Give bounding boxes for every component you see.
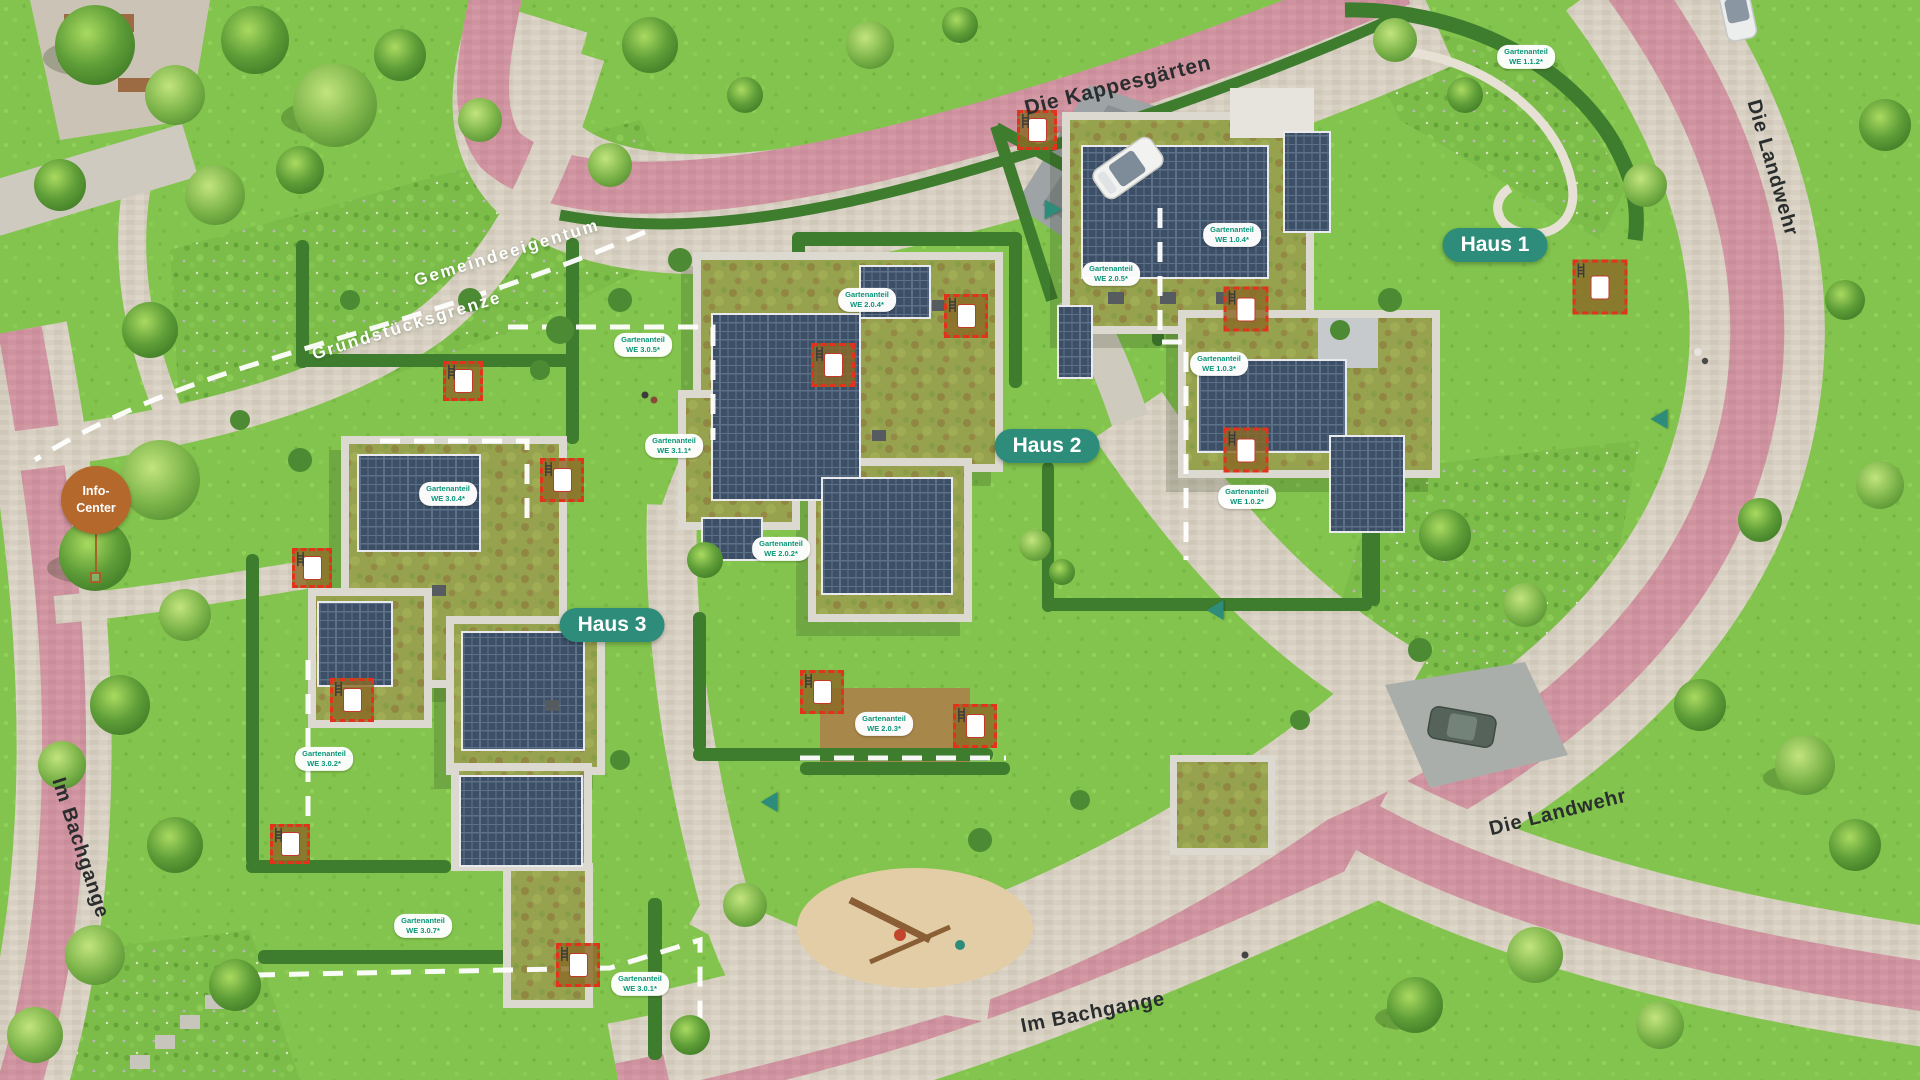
- ladder-icon: [966, 714, 985, 738]
- terrace-marker: [540, 458, 584, 502]
- entrance-arrow-icon: [1651, 409, 1668, 429]
- label-overlay: GemeindeeigentumGrundstücksgrenze Die Ka…: [0, 0, 1920, 1080]
- boundary-label: Gemeindeeigentum: [412, 215, 602, 291]
- garden-share-label: GartenanteilWE 3.1.1*: [645, 434, 703, 458]
- ladder-icon: [569, 953, 588, 977]
- entrance-arrow-icon: [1036, 195, 1062, 220]
- terrace-marker: [292, 548, 332, 588]
- garden-share-label: GartenanteilWE 2.0.3*: [855, 712, 913, 736]
- ladder-icon: [281, 832, 300, 856]
- garden-share-label: GartenanteilWE 3.0.7*: [394, 914, 452, 938]
- ladder-icon: [813, 680, 832, 704]
- ladder-icon: [303, 556, 322, 580]
- site-plan: GemeindeeigentumGrundstücksgrenze Die Ka…: [0, 0, 1920, 1080]
- terrace-marker: [330, 678, 374, 722]
- terrace-marker: [1224, 428, 1269, 473]
- garden-share-label: GartenanteilWE 2.0.5*: [1082, 262, 1140, 286]
- entrance-arrow-icon: [761, 792, 778, 812]
- info-center-label-line2: Center: [76, 500, 116, 517]
- garden-share-label: GartenanteilWE 1.0.4*: [1203, 223, 1261, 247]
- terrace-marker: [270, 824, 310, 864]
- terrace-marker: [944, 294, 988, 338]
- terrace-marker: [443, 361, 483, 401]
- garden-share-label: GartenanteilWE 1.0.2*: [1218, 485, 1276, 509]
- info-center-foot: [90, 572, 101, 583]
- street-name-label: Im Bachgange: [46, 775, 113, 921]
- garden-share-label: GartenanteilWE 3.0.5*: [614, 333, 672, 357]
- ladder-icon: [343, 688, 362, 712]
- ladder-icon: [1237, 438, 1256, 462]
- info-center-stem: [95, 534, 97, 572]
- terrace-marker: [1573, 260, 1628, 315]
- ladder-icon: [824, 353, 843, 377]
- street-name-label: Die Kappesgärten: [1022, 51, 1213, 121]
- terrace-marker: [811, 343, 855, 387]
- garden-share-label: GartenanteilWE 3.0.2*: [295, 747, 353, 771]
- ladder-icon: [454, 369, 473, 393]
- house-label-pill[interactable]: Haus 1: [1443, 228, 1548, 262]
- garden-share-label: GartenanteilWE 3.0.1*: [611, 972, 669, 996]
- street-name-label: Im Bachgange: [1019, 988, 1167, 1038]
- garden-share-label: GartenanteilWE 3.0.4*: [419, 482, 477, 506]
- ladder-icon: [957, 304, 976, 328]
- terrace-marker: [953, 704, 997, 748]
- garden-share-label: GartenanteilWE 1.0.3*: [1190, 352, 1248, 376]
- terrace-marker: [1224, 287, 1269, 332]
- boundary-label: Grundstücksgrenze: [310, 288, 504, 365]
- street-name-label: Die Landwehr: [1487, 785, 1629, 841]
- terrace-marker: [556, 943, 600, 987]
- info-center-label-line1: Info-: [82, 483, 109, 500]
- garden-share-label: GartenanteilWE 2.0.4*: [838, 288, 896, 312]
- entrance-arrow-icon: [1207, 600, 1224, 620]
- garden-share-label: GartenanteilWE 2.0.2*: [752, 537, 810, 561]
- street-name-label: Die Landwehr: [1742, 97, 1803, 239]
- ladder-icon: [1591, 275, 1610, 299]
- ladder-icon: [553, 468, 572, 492]
- house-label-pill[interactable]: Haus 2: [995, 429, 1100, 463]
- house-label-pill[interactable]: Haus 3: [560, 608, 665, 642]
- info-center-bubble[interactable]: Info- Center: [61, 466, 131, 534]
- terrace-marker: [800, 670, 844, 714]
- ladder-icon: [1237, 297, 1256, 321]
- ladder-icon: [1028, 118, 1047, 142]
- garden-share-label: GartenanteilWE 1.1.2*: [1497, 45, 1555, 69]
